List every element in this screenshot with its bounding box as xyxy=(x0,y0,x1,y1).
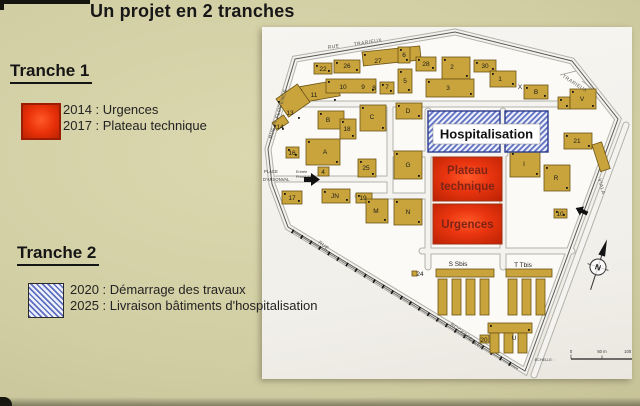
tranche2-items: 2020 : Démarrage des travaux 2025 : Livr… xyxy=(70,282,317,314)
plateau-technique-rect xyxy=(433,157,502,201)
building xyxy=(508,279,517,315)
door-dot xyxy=(418,175,420,177)
door-dot xyxy=(396,153,398,155)
place-label-line2: D'ARSONVAL xyxy=(263,177,290,182)
door-dot xyxy=(308,141,310,143)
door-dot xyxy=(390,90,392,92)
building-label: 13 xyxy=(286,110,294,117)
door-dot xyxy=(342,121,344,123)
building xyxy=(442,57,470,79)
door-dot xyxy=(572,91,574,93)
building-label: 11 xyxy=(311,92,318,99)
building xyxy=(506,269,552,277)
door-dot xyxy=(408,89,410,91)
tranche2-heading: Tranche 2 xyxy=(17,243,99,266)
building-label: G xyxy=(405,162,410,169)
building-label: 26 xyxy=(343,63,351,70)
door-dot xyxy=(364,54,366,56)
plateau-label-line2: technique xyxy=(440,181,494,193)
door-dot xyxy=(298,200,300,202)
door-dot xyxy=(492,73,494,75)
door-dot xyxy=(316,65,318,67)
building xyxy=(426,79,474,97)
door-dot xyxy=(592,105,594,107)
door-dot xyxy=(512,153,514,155)
tranche1-heading: Tranche 1 xyxy=(10,61,92,84)
door-dot xyxy=(368,201,370,203)
building xyxy=(466,279,475,315)
door-dot xyxy=(298,117,300,119)
door-dot xyxy=(560,99,562,101)
photo-edge-bottom xyxy=(0,397,640,406)
building-label: N xyxy=(406,209,411,216)
building-label: I xyxy=(523,161,525,168)
scale-tick-100: 100 m xyxy=(624,349,632,354)
door-dot xyxy=(336,62,338,64)
door-dot xyxy=(588,145,590,147)
building-label: 20 xyxy=(480,337,488,344)
building-label: 28 xyxy=(422,61,430,68)
plateau-label-line1: Plateau xyxy=(447,165,488,177)
door-dot xyxy=(328,70,330,72)
building-label: 6 xyxy=(402,52,406,59)
building-label: 25 xyxy=(362,165,370,172)
door-dot xyxy=(398,105,400,107)
building xyxy=(518,333,527,353)
door-dot xyxy=(346,199,348,201)
building-label: D xyxy=(406,108,411,115)
door-dot xyxy=(406,59,408,61)
site-map: Hospitalisation Plateau technique Urgenc… xyxy=(262,27,632,379)
door-dot xyxy=(382,84,384,86)
phase2-hatch-swatch xyxy=(28,283,64,318)
door-dot xyxy=(512,83,514,85)
tranche2-item-2025: 2025 : Livraison bâtiments d'hospitalisa… xyxy=(70,298,317,314)
building-label: 10 xyxy=(339,84,347,91)
door-dot xyxy=(490,325,492,327)
scale-tick-0: 0 xyxy=(570,349,573,354)
building xyxy=(536,279,545,315)
building-label: 21 xyxy=(573,138,581,145)
page-title: Un projet en 2 tranches xyxy=(90,1,295,22)
building-label: 16 xyxy=(288,150,296,157)
building-label: 22 xyxy=(319,66,327,73)
building-label: 2 xyxy=(450,64,454,71)
door-dot xyxy=(328,81,330,83)
building-label: B xyxy=(534,89,538,96)
scale-tick-50: 50 m xyxy=(597,349,607,354)
door-dot xyxy=(418,59,420,61)
tranche2-item-2020: 2020 : Démarrage des travaux xyxy=(70,282,317,298)
building-label: V xyxy=(580,96,585,103)
hospitalisation-label: Hospitalisation xyxy=(440,127,533,142)
plateau-technique-zone: Plateau technique xyxy=(433,157,502,201)
building-label: 3 xyxy=(446,85,450,92)
door-dot xyxy=(528,329,530,331)
scale-bar: ECHELLE : 0 50 m 100 m xyxy=(535,349,632,362)
door-dot xyxy=(432,67,434,69)
building-label: 8 xyxy=(372,85,376,92)
entrance-label-line1: Entrée xyxy=(296,170,307,174)
door-dot xyxy=(418,115,420,117)
building xyxy=(326,79,376,93)
building xyxy=(510,151,540,177)
tranche1-item-2014: 2014 : Urgences xyxy=(63,102,207,118)
building-label: 4 xyxy=(321,169,325,176)
building xyxy=(480,279,489,315)
building-label: 19 xyxy=(359,195,367,202)
building xyxy=(436,269,494,277)
building-label: 9 xyxy=(361,84,365,91)
building xyxy=(522,279,531,315)
door-dot xyxy=(566,187,568,189)
door-dot xyxy=(544,95,546,97)
phase1-red-swatch xyxy=(21,103,61,140)
door-dot xyxy=(284,193,286,195)
building-label: R xyxy=(554,175,559,182)
door-dot xyxy=(476,62,478,64)
building xyxy=(452,279,461,315)
place-label-line1: PLACE xyxy=(264,169,278,174)
building-label: A xyxy=(323,149,328,156)
door-dot xyxy=(382,127,384,129)
site-map-sheet: Hospitalisation Plateau technique Urgenc… xyxy=(262,27,632,379)
door-dot xyxy=(400,71,402,73)
building-label: X xyxy=(518,84,523,91)
door-dot xyxy=(356,69,358,71)
door-dot xyxy=(336,161,338,163)
door-dot xyxy=(320,113,322,115)
building-label: M xyxy=(373,208,378,215)
door-dot xyxy=(536,173,538,175)
building-label: S Sbis xyxy=(449,261,469,268)
photo-edge-top-left xyxy=(0,0,90,4)
door-dot xyxy=(334,99,336,101)
tranche1-item-2017: 2017 : Plateau technique xyxy=(63,118,207,134)
door-dot xyxy=(418,221,420,223)
building xyxy=(558,97,570,109)
building-label: C xyxy=(370,114,375,121)
door-dot xyxy=(566,135,568,137)
door-dot xyxy=(466,75,468,77)
urgences-zone: Urgences xyxy=(433,204,502,244)
door-dot xyxy=(470,93,472,95)
scale-label: ECHELLE : xyxy=(535,358,554,362)
building-label: JN xyxy=(331,193,339,200)
hospitalisation-zone: Hospitalisation xyxy=(428,111,548,152)
building-label: 27 xyxy=(374,58,382,65)
building-label: B xyxy=(326,117,330,124)
door-dot xyxy=(400,49,402,51)
door-dot xyxy=(384,219,386,221)
tranche1-items: 2014 : Urgences 2017 : Plateau technique xyxy=(63,102,207,134)
building xyxy=(490,333,499,353)
building-label: 18 xyxy=(343,126,351,133)
door-dot xyxy=(566,105,568,107)
door-dot xyxy=(360,161,362,163)
building-label: 5 xyxy=(403,78,407,85)
door-dot xyxy=(526,87,528,89)
photo-edge-left xyxy=(0,0,4,10)
door-dot xyxy=(362,107,364,109)
door-dot xyxy=(324,191,326,193)
building-label: 10 xyxy=(556,211,564,218)
building xyxy=(488,323,532,333)
door-dot xyxy=(444,59,446,61)
compass-rose-icon: N xyxy=(580,236,617,293)
building-label: 7 xyxy=(385,84,389,91)
building-label: T Tbis xyxy=(514,262,533,269)
building xyxy=(438,279,447,315)
slide-photo: Un projet en 2 tranches xyxy=(0,0,640,406)
building-label: 1 xyxy=(498,76,502,83)
door-dot xyxy=(396,201,398,203)
door-dot xyxy=(372,173,374,175)
door-dot xyxy=(428,81,430,83)
building-label: 30 xyxy=(481,63,489,70)
urgences-label: Urgences xyxy=(441,219,493,231)
building-label: 17 xyxy=(288,195,296,202)
door-dot xyxy=(352,135,354,137)
door-dot xyxy=(546,167,548,169)
building-label: 24 xyxy=(416,271,424,278)
door-dot xyxy=(492,68,494,70)
building-label: U xyxy=(512,335,517,342)
